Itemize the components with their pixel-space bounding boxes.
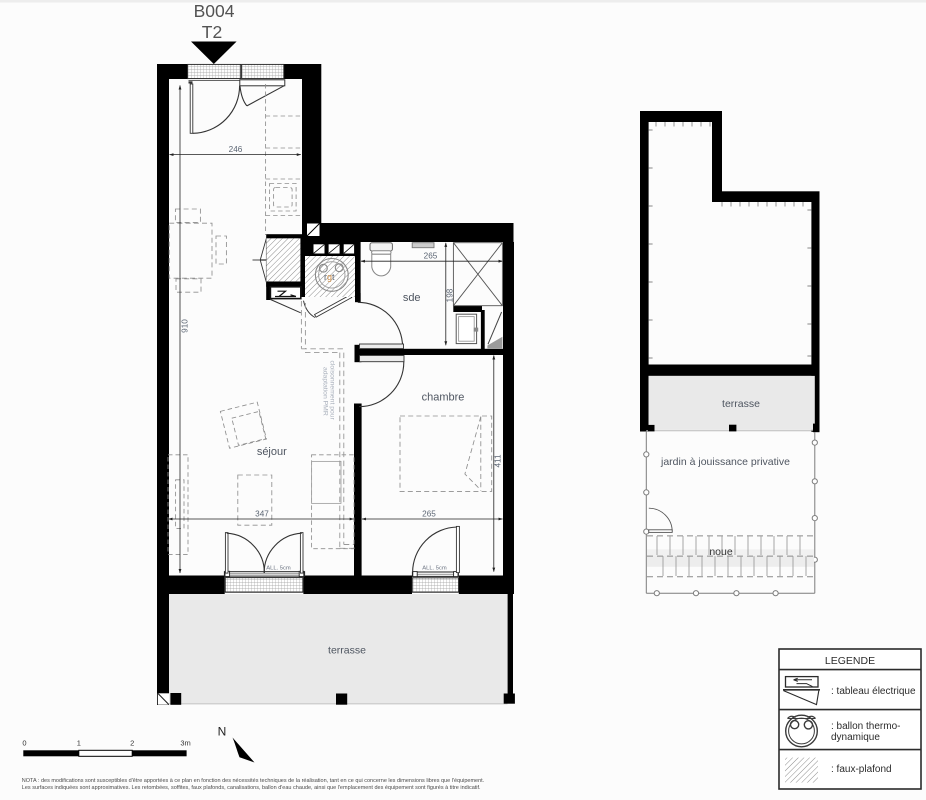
svg-text:0: 0 xyxy=(22,739,26,748)
svg-text:terrasse: terrasse xyxy=(722,398,760,410)
svg-text:ALL. 5cm: ALL. 5cm xyxy=(422,566,447,572)
svg-text:séjour: séjour xyxy=(257,446,287,458)
svg-text:T2: T2 xyxy=(202,22,222,42)
svg-text:sde: sde xyxy=(403,292,421,304)
svg-text:347: 347 xyxy=(255,509,269,518)
svg-text:: ballon thermo-: : ballon thermo- xyxy=(831,721,900,732)
svg-text:265: 265 xyxy=(424,252,438,261)
svg-text:LEGENDE: LEGENDE xyxy=(825,655,875,667)
svg-text:NOTA : des modifications sont: NOTA : des modifications sont susceptibl… xyxy=(22,778,485,784)
svg-text:rgt: rgt xyxy=(324,272,335,282)
svg-text:cloisonnement pour: cloisonnement pour xyxy=(329,361,336,421)
svg-text:246: 246 xyxy=(229,145,243,154)
svg-text:3m: 3m xyxy=(180,739,190,748)
svg-text:dynamique: dynamique xyxy=(831,732,880,743)
svg-text:terrasse: terrasse xyxy=(328,645,366,657)
svg-text:265: 265 xyxy=(422,509,436,518)
svg-text:jardin à jouissance privative: jardin à jouissance privative xyxy=(660,456,790,468)
svg-text:910: 910 xyxy=(180,319,189,333)
svg-text:1: 1 xyxy=(77,739,81,748)
svg-text:chambre: chambre xyxy=(422,392,465,404)
svg-text:Les surfaces indiquées sont ap: Les surfaces indiquées sont approximativ… xyxy=(22,785,481,791)
svg-text:B004: B004 xyxy=(194,1,235,21)
svg-text:411: 411 xyxy=(494,454,503,467)
svg-text:noue: noue xyxy=(709,546,733,558)
svg-text:N: N xyxy=(218,725,227,739)
svg-text:2: 2 xyxy=(130,739,134,748)
svg-text:adaptation PMR: adaptation PMR xyxy=(322,367,329,416)
svg-text:: faux-plafond: : faux-plafond xyxy=(831,764,892,775)
svg-text:: tableau électrique: : tableau électrique xyxy=(831,686,916,697)
svg-text:ALL. 5cm: ALL. 5cm xyxy=(266,566,291,572)
svg-text:198: 198 xyxy=(446,288,455,302)
